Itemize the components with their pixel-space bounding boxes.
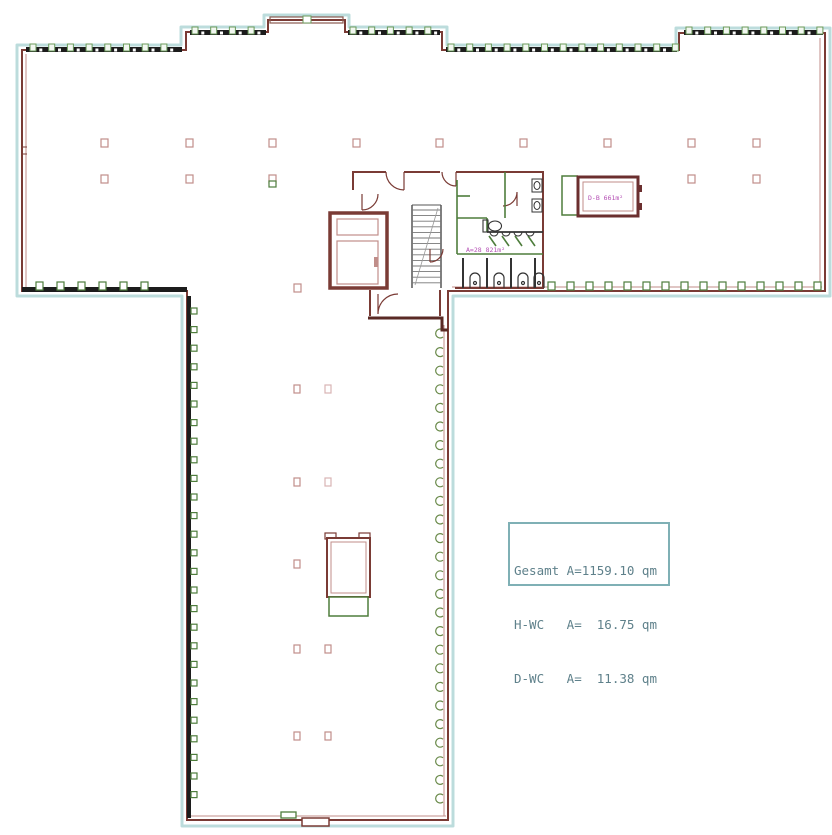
- facade-tick: [99, 282, 106, 290]
- facade-tick: [605, 282, 612, 290]
- window-mullion-tick: [761, 27, 767, 34]
- window-glass-dot: [434, 32, 437, 35]
- facade-tick: [78, 282, 85, 290]
- window-mullion-tick: [448, 44, 454, 51]
- window-glass-dot: [114, 49, 117, 52]
- facade-tick: [738, 282, 745, 290]
- facade-tick: [191, 643, 197, 649]
- column: [269, 139, 276, 147]
- green-column-mark: [269, 181, 276, 187]
- column: [353, 139, 360, 147]
- facade-tick: [191, 327, 197, 333]
- facade-tick: [191, 531, 197, 537]
- column: [294, 385, 300, 393]
- window-mullion-tick: [560, 44, 566, 51]
- facade-tick: [141, 282, 148, 290]
- column: [294, 478, 300, 486]
- window-glass-dot: [751, 32, 754, 35]
- column: [325, 645, 331, 653]
- window-mullion-tick: [817, 27, 823, 34]
- facade-tick: [191, 699, 197, 705]
- column: [688, 175, 695, 183]
- facade-tick: [120, 282, 127, 290]
- facade-tick: [191, 773, 197, 779]
- column: [294, 645, 300, 653]
- facade-tick: [191, 457, 197, 463]
- room-door-tick: [638, 203, 642, 210]
- facade-tick: [586, 282, 593, 290]
- window-glass-dot: [133, 49, 136, 52]
- bottom-green-bump: [281, 812, 296, 818]
- window-glass-dot: [95, 49, 98, 52]
- window-glass-dot: [77, 49, 80, 52]
- window-glass-dot: [359, 32, 362, 35]
- facade-tick: [57, 282, 64, 290]
- facade-tick: [36, 282, 43, 290]
- window-mullion-tick: [105, 44, 111, 51]
- window-mullion-tick: [425, 27, 431, 34]
- facade-tick: [191, 680, 197, 686]
- facade-tick: [719, 282, 726, 290]
- window-glass-dot: [714, 32, 717, 35]
- facade-tick: [191, 754, 197, 760]
- window-mullion-tick: [485, 44, 491, 51]
- window-glass-dot: [39, 49, 42, 52]
- window-glass-dot: [239, 32, 242, 35]
- window-glass-dot: [152, 49, 155, 52]
- window-mullion-tick: [387, 27, 393, 34]
- facade-tick: [191, 792, 197, 798]
- facade-tick: [191, 661, 197, 667]
- column: [186, 175, 193, 183]
- window-mullion-tick: [192, 27, 198, 34]
- facade-tick: [191, 438, 197, 444]
- facade-tick: [191, 736, 197, 742]
- room-door-tick: [638, 185, 642, 192]
- column: [101, 139, 108, 147]
- facade-tick: [191, 475, 197, 481]
- facade-tick: [191, 382, 197, 388]
- column: [604, 139, 611, 147]
- facade-tick: [191, 308, 197, 314]
- window-mullion-tick: [798, 27, 804, 34]
- window-mullion-tick: [142, 44, 148, 51]
- window-glass-dot: [551, 49, 554, 52]
- column: [294, 560, 300, 568]
- window-mullion-tick: [723, 27, 729, 34]
- facade-tick: [191, 717, 197, 723]
- window-mullion-tick: [86, 44, 92, 51]
- window-glass-dot: [607, 49, 610, 52]
- elevator-door-mark: [374, 257, 378, 267]
- facade-tick: [191, 624, 197, 630]
- area-row-gesamt: Gesamt A=1159.10 qm: [514, 562, 664, 580]
- facade-tick: [776, 282, 783, 290]
- window-mullion-tick: [635, 44, 641, 51]
- area-row-hwc: H-WC A= 16.75 qm: [514, 616, 664, 634]
- facade-tick: [191, 513, 197, 519]
- window-mullion-tick: [504, 44, 510, 51]
- facade-tick: [191, 364, 197, 370]
- column: [325, 478, 331, 486]
- column: [294, 284, 301, 292]
- window-mullion-tick: [229, 27, 235, 34]
- window-glass-dot: [378, 32, 381, 35]
- window-glass-dot: [58, 49, 61, 52]
- window-glass-dot: [257, 32, 260, 35]
- window-mullion-tick: [579, 44, 585, 51]
- window-mullion-tick: [467, 44, 473, 51]
- window-glass-dot: [770, 32, 773, 35]
- window-mullion-tick: [211, 27, 217, 34]
- window-mullion-tick: [406, 27, 412, 34]
- column: [688, 139, 695, 147]
- window-mullion-tick: [742, 27, 748, 34]
- window-glass-dot: [733, 32, 736, 35]
- window-glass-dot: [789, 32, 792, 35]
- top-bump-tick: [303, 16, 311, 23]
- column: [294, 732, 300, 740]
- facade-tick: [643, 282, 650, 290]
- window-mullion-tick: [49, 44, 55, 51]
- facade-tick: [624, 282, 631, 290]
- window-mullion-tick: [161, 44, 167, 51]
- window-mullion-tick: [780, 27, 786, 34]
- facade-tick: [191, 606, 197, 612]
- window-glass-dot: [476, 49, 479, 52]
- window-glass-dot: [570, 49, 573, 52]
- window-mullion-tick: [350, 27, 356, 34]
- window-mullion-tick: [542, 44, 548, 51]
- window-glass-dot: [695, 32, 698, 35]
- floor-plan-canvas: A=28 821m² D-B 661m² Gesamt A=1159.10 qm…: [0, 0, 832, 835]
- facade-tick: [757, 282, 764, 290]
- facade-tick: [191, 550, 197, 556]
- window-glass-dot: [220, 32, 223, 35]
- window-glass-dot: [626, 49, 629, 52]
- window-mullion-tick: [686, 27, 692, 34]
- stem-shaft: [325, 533, 370, 616]
- column: [753, 139, 760, 147]
- bottom-entrance-step: [302, 818, 329, 826]
- window-mullion-tick: [369, 27, 375, 34]
- window-mullion-tick: [67, 44, 73, 51]
- facade-tick: [700, 282, 707, 290]
- window-mullion-tick: [248, 27, 254, 34]
- window-mullion-tick: [616, 44, 622, 51]
- floor-plan-drawing: A=28 821m² D-B 661m²: [0, 0, 832, 835]
- shaft-green-ext: [329, 597, 368, 616]
- facade-tick: [191, 587, 197, 593]
- column: [520, 139, 527, 147]
- column: [325, 732, 331, 740]
- facade-tick: [662, 282, 669, 290]
- window-mullion-tick: [705, 27, 711, 34]
- room-label: D-B 661m²: [588, 194, 623, 202]
- facade-tick: [814, 282, 821, 290]
- facade-tick: [191, 494, 197, 500]
- exterior-wall: [22, 20, 825, 820]
- window-glass-dot: [663, 49, 666, 52]
- column: [186, 139, 193, 147]
- column: [753, 175, 760, 183]
- area-summary-box: Gesamt A=1159.10 qm H-WC A= 16.75 qm D-W…: [508, 522, 670, 586]
- window-mullion-tick: [30, 44, 36, 51]
- window-glass-dot: [495, 49, 498, 52]
- wc-area-label: A=28 821m²: [466, 246, 505, 254]
- facade-tick: [191, 568, 197, 574]
- area-row-dwc: D-WC A= 11.38 qm: [514, 670, 664, 688]
- window-glass-dot: [532, 49, 535, 52]
- window-glass-dot: [644, 49, 647, 52]
- column: [101, 175, 108, 183]
- window-mullion-tick: [654, 44, 660, 51]
- column: [325, 385, 331, 393]
- window-mullion-tick: [523, 44, 529, 51]
- facade-tick: [567, 282, 574, 290]
- window-mullion-tick: [598, 44, 604, 51]
- window-glass-dot: [808, 32, 811, 35]
- window-glass-dot: [457, 49, 460, 52]
- facade-tick: [795, 282, 802, 290]
- window-glass-dot: [513, 49, 516, 52]
- window-mullion-tick: [124, 44, 130, 51]
- facade-tick: [191, 401, 197, 407]
- facade-tick: [681, 282, 688, 290]
- window-glass-dot: [397, 32, 400, 35]
- facade-tick: [191, 420, 197, 426]
- column: [436, 139, 443, 147]
- window-mullion-tick: [672, 44, 678, 51]
- window-glass-dot: [415, 32, 418, 35]
- window-glass-dot: [170, 49, 173, 52]
- window-glass-dot: [588, 49, 591, 52]
- facade-tick: [191, 345, 197, 351]
- shaft-outer: [327, 538, 370, 597]
- window-glass-dot: [201, 32, 204, 35]
- facade-tick: [548, 282, 555, 290]
